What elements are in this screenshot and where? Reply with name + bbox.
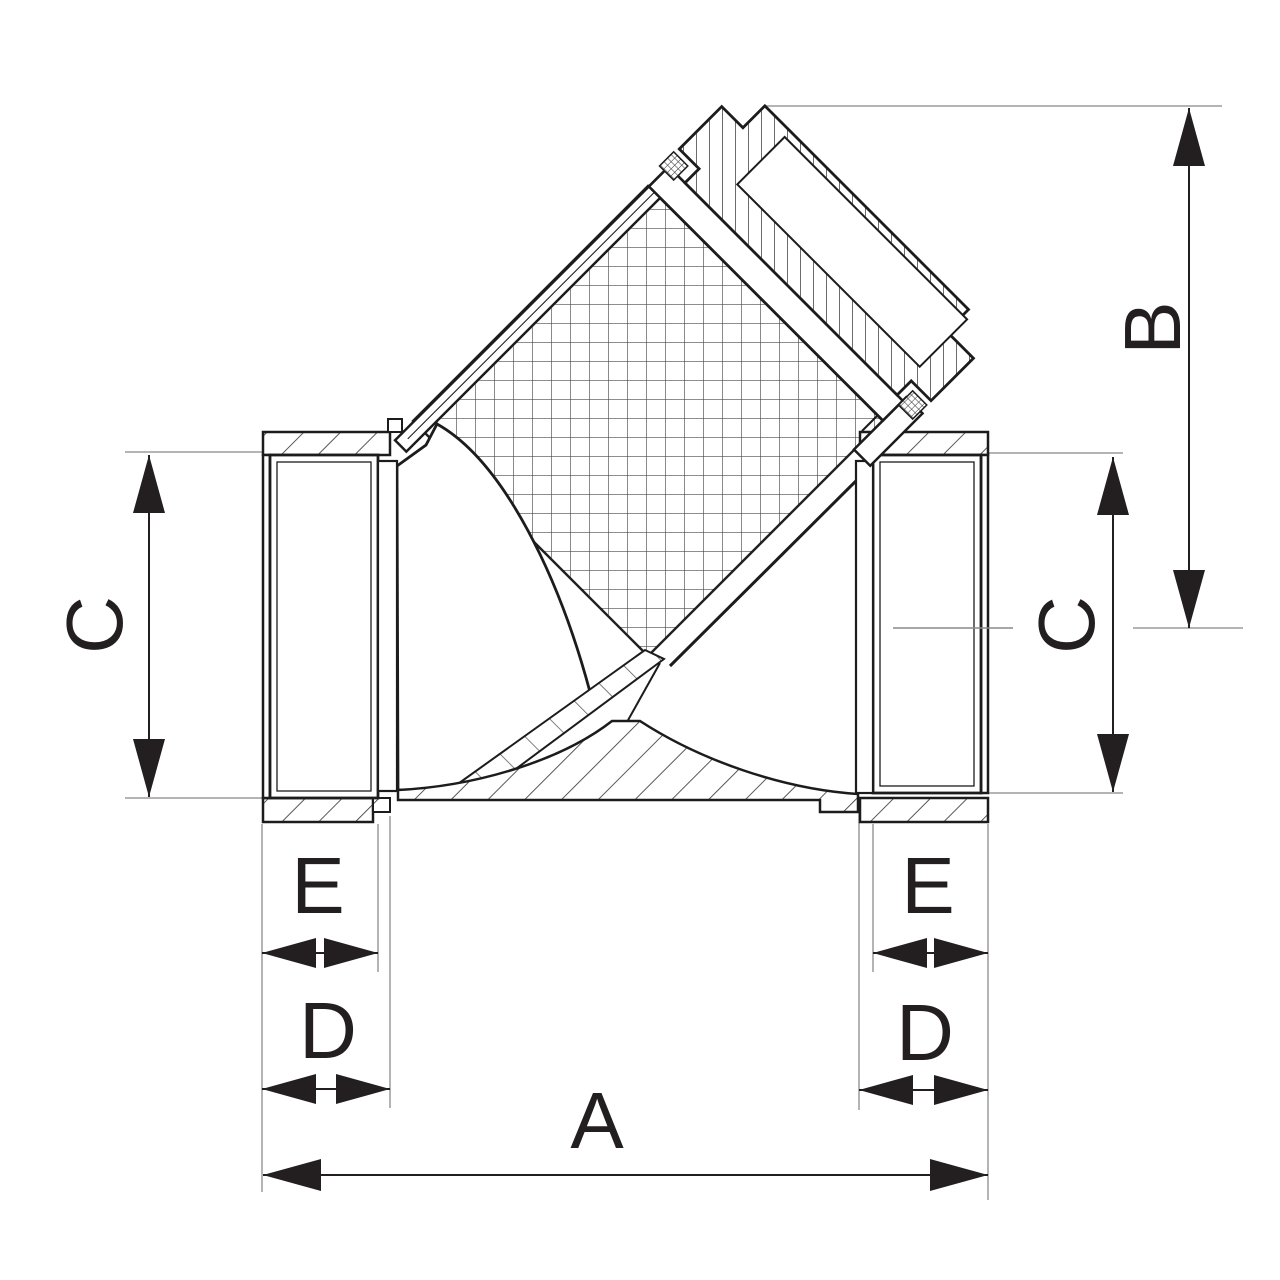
- dim-e-right: [873, 938, 988, 968]
- dim-label-e-left: E: [291, 841, 344, 930]
- right-socket: [856, 407, 988, 822]
- dim-label-c-left: C: [50, 596, 139, 654]
- dim-d-left: [262, 1074, 390, 1104]
- dim-e-left: [262, 938, 378, 968]
- left-port-bore: [270, 455, 378, 798]
- left-socket-step: [388, 419, 402, 432]
- right-socket-bottom-wall: [860, 798, 988, 822]
- left-socket-top-wall: [263, 432, 390, 455]
- dim-label-d-right: D: [896, 988, 954, 1077]
- right-bore-end-wall: [856, 461, 873, 793]
- left-socket-bottom-step: [373, 798, 390, 812]
- dim-label-e-right: E: [901, 841, 954, 930]
- dim-d-right: [859, 1075, 988, 1105]
- right-port-bore: [873, 455, 981, 793]
- y-strainer-technical-drawing: A B C C E D E D: [0, 0, 1280, 1280]
- left-bore-end-wall: [378, 461, 397, 791]
- left-socket-bottom-wall: [263, 798, 373, 822]
- dim-label-d-left: D: [299, 986, 357, 1075]
- dim-a: [263, 1159, 988, 1191]
- dim-label-a: A: [570, 1076, 624, 1165]
- drawing-canvas: A B C C E D E D: [0, 0, 1280, 1280]
- dim-label-b: B: [1108, 301, 1197, 354]
- left-socket: [263, 419, 402, 822]
- dim-b: [1173, 108, 1205, 628]
- dim-label-c-right: C: [1022, 596, 1111, 654]
